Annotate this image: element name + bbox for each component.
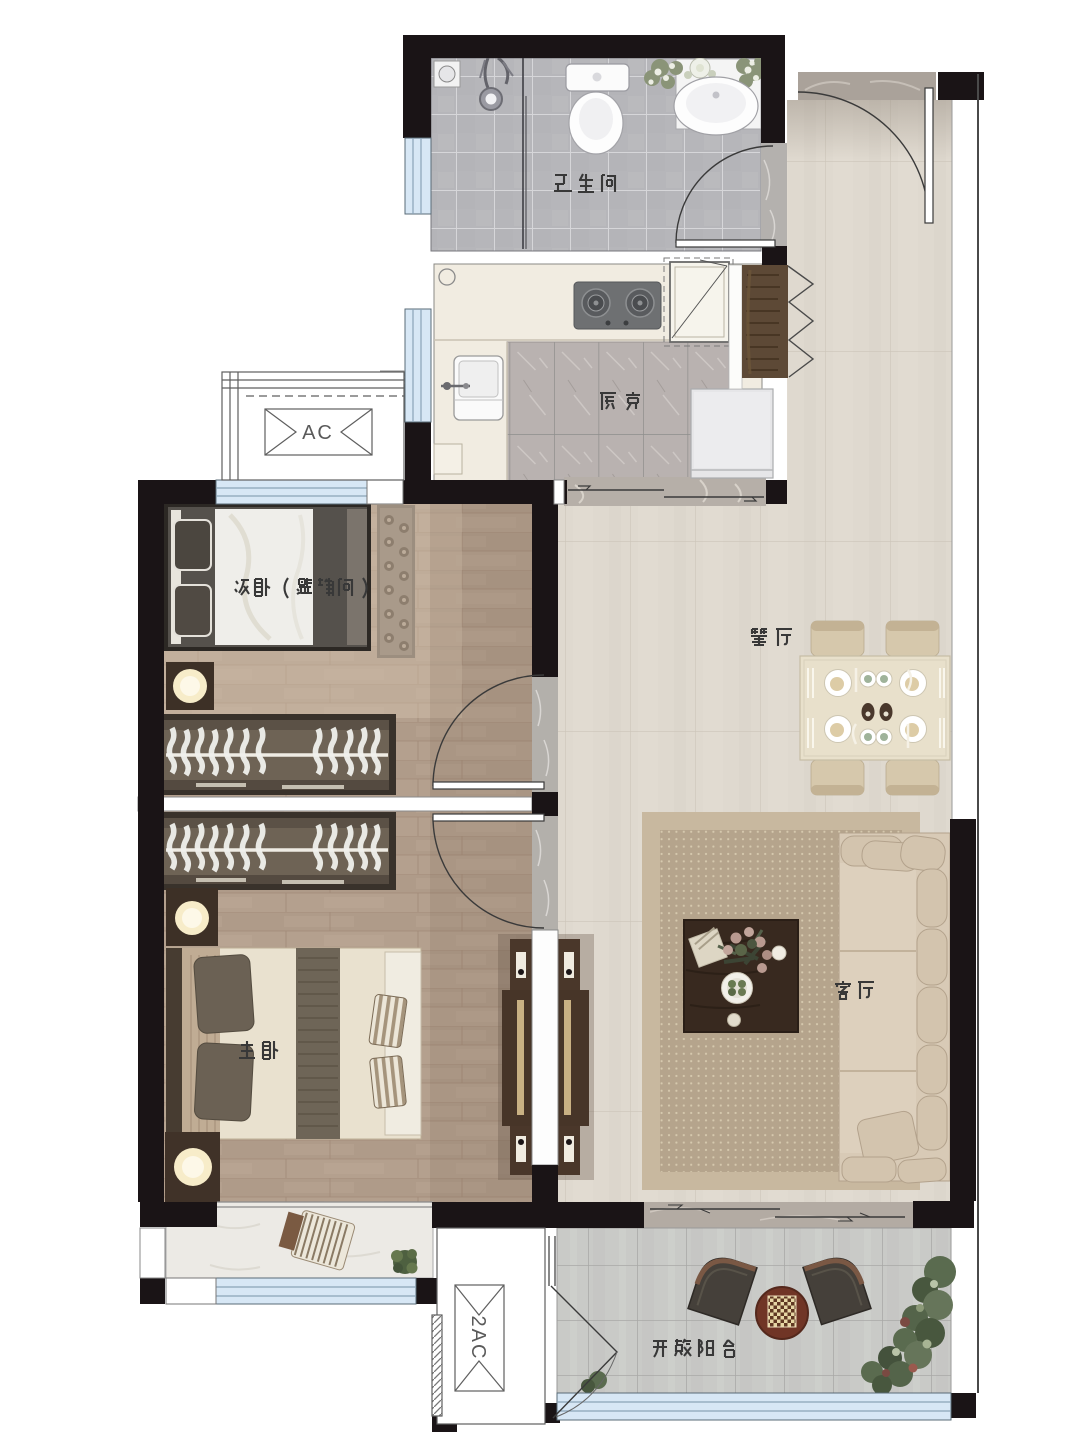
svg-text:2AC: 2AC (467, 1316, 489, 1361)
svg-text:AC: AC (302, 422, 334, 444)
